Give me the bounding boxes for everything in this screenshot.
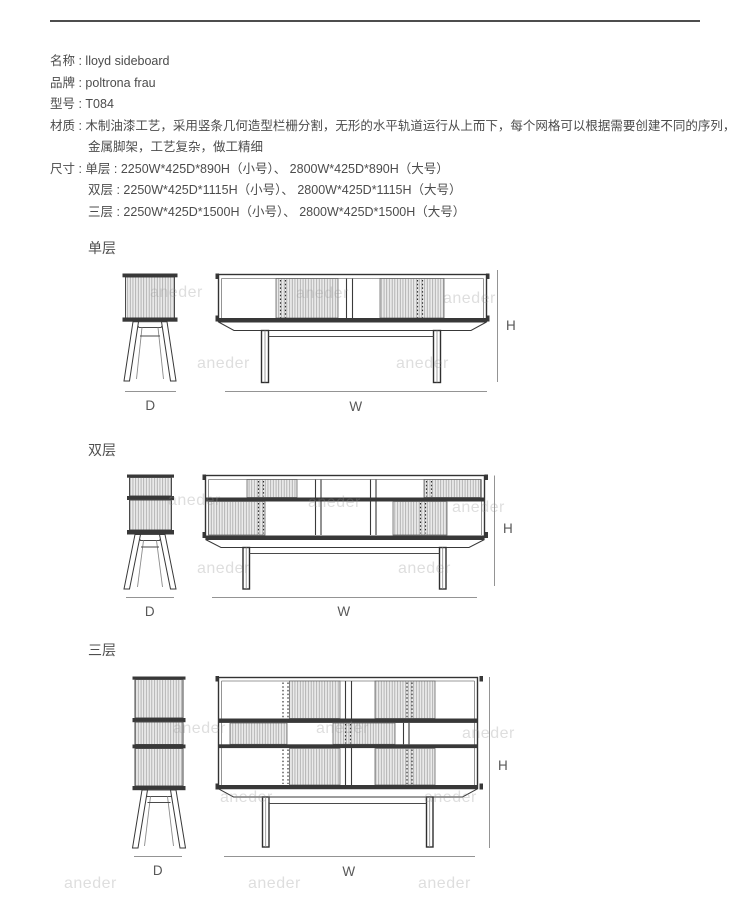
top-divider	[50, 20, 700, 22]
spec-size-triple: 三层 : 2250W*425D*1500H（小号）、 2800W*425D*15…	[50, 202, 735, 224]
depth-label: D	[153, 863, 163, 878]
watermark-text: aneder	[197, 355, 250, 373]
watermark-text: aneder	[316, 720, 369, 738]
double-side-view	[124, 475, 176, 590]
width-label: W	[342, 864, 355, 879]
watermark-text: aneder	[64, 875, 117, 893]
depth-label: D	[145, 604, 155, 619]
single-dimensions: D W H	[125, 270, 516, 414]
figure-triple-tier: 三层	[88, 642, 508, 879]
watermark-text: aneder	[452, 499, 505, 517]
width-label: W	[349, 399, 362, 414]
product-spec-page: 名称 : lloyd sideboard 品牌 : poltrona frau …	[0, 0, 750, 922]
figure-double-tier: 双层	[88, 442, 513, 619]
watermark-text: aneder	[308, 494, 361, 512]
single-side-view	[123, 274, 178, 382]
watermark-text: aneder	[396, 355, 449, 373]
watermark-text: aneder	[173, 720, 226, 738]
watermark-text: aneder	[398, 560, 451, 578]
watermark-text: aneder	[418, 875, 471, 893]
watermark-text: aneder	[197, 560, 250, 578]
height-label: H	[506, 318, 516, 333]
figure-single-tier: 单层	[88, 240, 516, 414]
width-label: W	[337, 604, 350, 619]
depth-label: D	[145, 398, 155, 413]
watermark-text: aneder	[462, 725, 515, 743]
spec-model: 型号 : T084	[50, 94, 735, 116]
figure-title-triple: 三层	[88, 642, 116, 658]
double-dimensions: D W H	[126, 476, 513, 620]
spec-material-1: 材质 : 木制油漆工艺，采用竖条几何造型栏栅分割，无形的水平轨道运行从上而下，每…	[50, 116, 735, 138]
triple-side-view	[133, 677, 186, 849]
watermark-text: aneder	[424, 789, 477, 807]
spec-size-single: 尺寸 : 单层 : 2250W*425D*890H（小号）、 2800W*425…	[50, 159, 735, 181]
watermark-text: aneder	[220, 789, 273, 807]
spec-brand: 品牌 : poltrona frau	[50, 73, 735, 95]
triple-front-view	[216, 676, 484, 847]
watermark-text: aneder	[443, 290, 496, 308]
spec-block: 名称 : lloyd sideboard 品牌 : poltrona frau …	[50, 51, 735, 223]
watermark-text: aneder	[248, 875, 301, 893]
height-label: H	[498, 758, 508, 773]
double-front-view	[203, 475, 489, 590]
figure-title-double: 双层	[88, 442, 116, 458]
figure-title-single: 单层	[88, 240, 116, 256]
spec-size-double: 双层 : 2250W*425D*1115H（小号）、 2800W*425D*11…	[50, 180, 735, 202]
watermark-text: aneder	[168, 492, 221, 510]
height-label: H	[503, 521, 513, 536]
spec-material-2: 金属脚架，工艺复杂，做工精细	[50, 137, 735, 159]
watermark-text: aneder	[150, 284, 203, 302]
spec-name: 名称 : lloyd sideboard	[50, 51, 735, 73]
watermark-text: aneder	[296, 285, 349, 303]
single-front-view	[216, 274, 490, 383]
triple-dimensions: D W H	[134, 677, 508, 879]
